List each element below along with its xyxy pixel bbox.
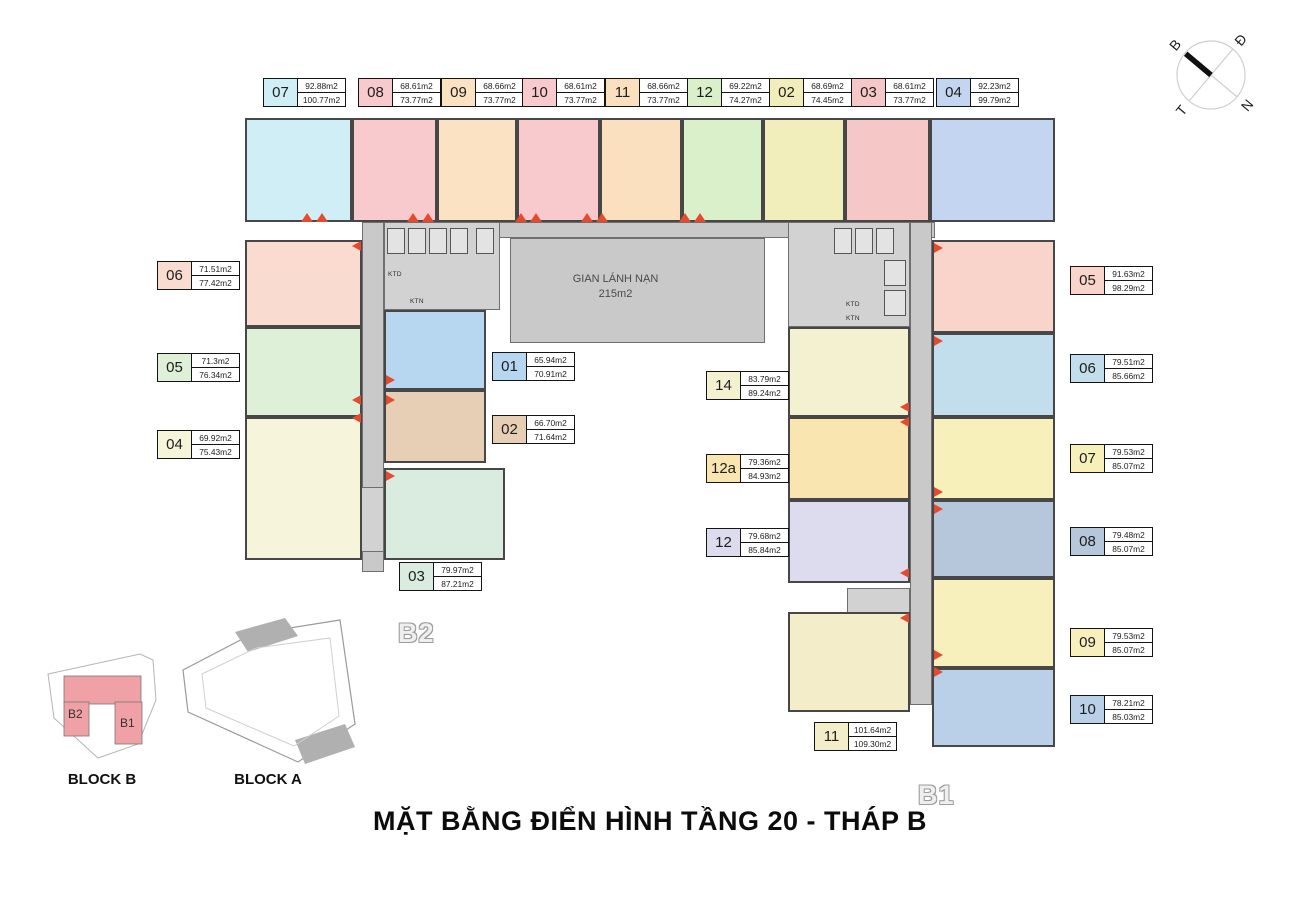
unit-number: 01 (493, 353, 527, 380)
unit-label-right-06: 06 79.51m285.66m2 (1070, 354, 1153, 383)
entry-marker-icon (934, 243, 943, 253)
plan-unit-top-08 (352, 118, 437, 222)
unit-number: 07 (264, 79, 298, 106)
wing-watermark-b2: B2 (398, 618, 435, 649)
unit-area-1: 68.69m2 (804, 79, 851, 93)
unit-area-2: 73.77m2 (557, 93, 604, 106)
compass-north-label: B (1166, 36, 1184, 53)
unit-area-1: 83.79m2 (741, 372, 788, 386)
unit-label-top-08: 08 68.61m273.77m2 (358, 78, 441, 107)
elevator-shaft (408, 228, 426, 254)
unit-area-1: 71.51m2 (192, 262, 239, 276)
unit-number: 03 (852, 79, 886, 106)
unit-number: 04 (158, 431, 192, 458)
unit-number: 08 (359, 79, 393, 106)
entry-marker-icon (301, 213, 313, 222)
entry-marker-icon (679, 213, 691, 222)
unit-number: 08 (1071, 528, 1105, 555)
unit-number: 09 (1071, 629, 1105, 656)
plan-unit-inner-12 (788, 500, 910, 583)
entry-marker-icon (422, 213, 434, 222)
unit-area-2: 99.79m2 (971, 93, 1018, 106)
plan-unit-top-11 (600, 118, 682, 222)
unit-area-1: 79.97m2 (434, 563, 481, 577)
refuge-size: 215m2 (528, 287, 703, 302)
elevator-shaft (834, 228, 852, 254)
stairs-right (847, 588, 910, 614)
plan-unit-top-02 (763, 118, 845, 222)
plan-unit-inner-14 (788, 327, 910, 417)
plan-unit-top-12 (682, 118, 763, 222)
unit-label-top-04: 04 92.23m299.79m2 (936, 78, 1019, 107)
entry-marker-icon (581, 213, 593, 222)
unit-label-inner-02: 02 66.70m271.64m2 (492, 415, 575, 444)
entry-marker-icon (407, 213, 419, 222)
unit-area-2: 74.27m2 (722, 93, 769, 106)
block-a-label: BLOCK A (234, 771, 302, 788)
unit-area-1: 69.92m2 (192, 431, 239, 445)
entry-marker-icon (386, 395, 395, 405)
unit-area-1: 68.66m2 (476, 79, 523, 93)
unit-area-2: 85.07m2 (1105, 643, 1152, 656)
unit-number: 14 (707, 372, 741, 399)
unit-area-1: 66.70m2 (527, 416, 574, 430)
plan-unit-right-06 (932, 333, 1055, 417)
elevator-shaft (450, 228, 468, 254)
unit-number: 12a (707, 455, 741, 482)
plan-unit-top-10 (517, 118, 600, 222)
entry-marker-icon (316, 213, 328, 222)
unit-area-1: 65.94m2 (527, 353, 574, 367)
unit-area-1: 68.61m2 (886, 79, 933, 93)
core-label-ktd: KTD (388, 271, 402, 278)
plan-unit-inner-12a (788, 417, 910, 500)
elevator-shaft (429, 228, 447, 254)
unit-number: 12 (688, 79, 722, 106)
unit-area-2: 85.03m2 (1105, 710, 1152, 723)
elevator-shaft (855, 228, 873, 254)
plan-unit-right-05 (932, 240, 1055, 333)
unit-number: 07 (1071, 445, 1105, 472)
unit-number: 03 (400, 563, 434, 590)
unit-area-2: 73.77m2 (886, 93, 933, 106)
unit-area-1: 101.64m2 (849, 723, 896, 737)
elevator-shaft (476, 228, 494, 254)
unit-area-1: 79.36m2 (741, 455, 788, 469)
unit-label-right-09: 09 79.53m285.07m2 (1070, 628, 1153, 657)
plan-unit-left-06 (245, 240, 362, 327)
entry-marker-icon (352, 241, 361, 251)
entry-marker-icon (900, 417, 909, 427)
unit-number: 05 (158, 354, 192, 381)
unit-label-top-10: 10 68.61m273.77m2 (522, 78, 605, 107)
unit-label-top-03: 03 68.61m273.77m2 (851, 78, 934, 107)
core-label-ktn: KTN (410, 298, 424, 305)
plan-unit-right-07 (932, 417, 1055, 500)
compass-needle (1186, 54, 1211, 75)
unit-number: 02 (493, 416, 527, 443)
unit-label-top-07: 07 92.88m2100.77m2 (263, 78, 346, 107)
unit-area-2: 75.43m2 (192, 445, 239, 458)
unit-area-1: 78.21m2 (1105, 696, 1152, 710)
plan-unit-inner-02 (384, 390, 486, 463)
unit-area-2: 73.77m2 (640, 93, 687, 106)
unit-area-2: 109.30m2 (849, 737, 896, 750)
entry-marker-icon (934, 336, 943, 346)
unit-area-2: 87.21m2 (434, 577, 481, 590)
unit-area-2: 73.77m2 (476, 93, 523, 106)
unit-label-right-10: 10 78.21m285.03m2 (1070, 695, 1153, 724)
entry-marker-icon (934, 487, 943, 497)
unit-area-2: 85.07m2 (1105, 542, 1152, 555)
unit-label-right-07: 07 79.53m285.07m2 (1070, 444, 1153, 473)
entry-marker-icon (530, 213, 542, 222)
unit-label-right-05: 05 91.63m298.29m2 (1070, 266, 1153, 295)
plan-unit-left-05 (245, 327, 362, 417)
elevator-shaft (876, 228, 894, 254)
compass-south-label: N (1238, 96, 1257, 114)
page-title: MẶT BẰNG ĐIỂN HÌNH TẦNG 20 - THÁP B (0, 806, 1300, 837)
unit-number: 02 (770, 79, 804, 106)
unit-number: 06 (158, 262, 192, 289)
unit-label-top-11: 11 68.66m273.77m2 (605, 78, 688, 107)
unit-number: 06 (1071, 355, 1105, 382)
unit-area-2: 77.42m2 (192, 276, 239, 289)
unit-area-2: 85.07m2 (1105, 459, 1152, 472)
unit-area-2: 70.91m2 (527, 367, 574, 380)
plan-unit-right-08 (932, 500, 1055, 578)
unit-label-top-02: 02 68.69m274.45m2 (769, 78, 852, 107)
unit-area-1: 91.63m2 (1105, 267, 1152, 281)
unit-number: 10 (1071, 696, 1105, 723)
site-key-map: B2 B1 BLOCK B BLOCK A (40, 612, 385, 797)
unit-area-1: 69.22m2 (722, 79, 769, 93)
unit-area-1: 79.53m2 (1105, 629, 1152, 643)
unit-area-2: 89.24m2 (741, 386, 788, 399)
unit-number: 12 (707, 529, 741, 556)
core-label-ktn: KTN (846, 315, 860, 322)
plan-unit-top-04 (930, 118, 1055, 222)
entry-marker-icon (900, 402, 909, 412)
unit-area-2: 98.29m2 (1105, 281, 1152, 294)
plan-unit-inner-03 (384, 468, 505, 560)
block-b-label: BLOCK B (68, 771, 136, 788)
elevator-shaft (884, 260, 906, 286)
core-label-ktd: KTD (846, 301, 860, 308)
site-b1-label: B1 (120, 716, 135, 730)
plan-unit-right-10 (932, 668, 1055, 747)
compass: B Đ N T (1152, 16, 1270, 134)
unit-area-2: 85.66m2 (1105, 369, 1152, 382)
unit-area-1: 68.61m2 (393, 79, 440, 93)
compass-east-label: Đ (1231, 31, 1250, 49)
entry-marker-icon (900, 568, 909, 578)
unit-area-1: 71.3m2 (192, 354, 239, 368)
unit-label-top-12: 12 69.22m274.27m2 (687, 78, 770, 107)
unit-area-1: 92.23m2 (971, 79, 1018, 93)
entry-marker-icon (352, 413, 361, 423)
unit-area-2: 71.64m2 (527, 430, 574, 443)
plan-unit-top-03 (845, 118, 930, 222)
unit-label-left-04: 04 69.92m275.43m2 (157, 430, 240, 459)
unit-area-2: 84.93m2 (741, 469, 788, 482)
unit-label-left-05: 05 71.3m276.34m2 (157, 353, 240, 382)
refuge-name: GIAN LÁNH NẠN (528, 272, 703, 287)
unit-number: 11 (606, 79, 640, 106)
plan-unit-right-09 (932, 578, 1055, 668)
wing-watermark-b1: B1 (918, 780, 955, 811)
unit-label-top-09: 09 68.66m273.77m2 (441, 78, 524, 107)
compass-west-label: T (1173, 101, 1191, 118)
elevator-shaft (387, 228, 405, 254)
entry-marker-icon (934, 504, 943, 514)
plan-unit-inner-11 (788, 612, 910, 712)
unit-label-inner-01: 01 65.94m270.91m2 (492, 352, 575, 381)
unit-label-inner-11: 11 101.64m2109.30m2 (814, 722, 897, 751)
unit-label-inner-14: 14 83.79m289.24m2 (706, 371, 789, 400)
unit-area-1: 79.51m2 (1105, 355, 1152, 369)
unit-label-inner-12a: 12a 79.36m284.93m2 (706, 454, 789, 483)
entry-marker-icon (352, 395, 361, 405)
unit-label-inner-12: 12 79.68m285.84m2 (706, 528, 789, 557)
entry-marker-icon (515, 213, 527, 222)
unit-area-1: 79.68m2 (741, 529, 788, 543)
unit-area-2: 85.84m2 (741, 543, 788, 556)
entry-marker-icon (900, 613, 909, 623)
entry-marker-icon (934, 650, 943, 660)
unit-number: 04 (937, 79, 971, 106)
unit-area-2: 73.77m2 (393, 93, 440, 106)
unit-area-2: 100.77m2 (298, 93, 345, 106)
plan-unit-top-07 (245, 118, 352, 222)
unit-area-1: 79.53m2 (1105, 445, 1152, 459)
unit-area-1: 68.66m2 (640, 79, 687, 93)
plan-unit-top-09 (437, 118, 517, 222)
unit-area-1: 68.61m2 (557, 79, 604, 93)
unit-number: 09 (442, 79, 476, 106)
entry-marker-icon (386, 375, 395, 385)
unit-area-1: 79.48m2 (1105, 528, 1152, 542)
unit-number: 10 (523, 79, 557, 106)
entry-marker-icon (596, 213, 608, 222)
elevator-shaft (884, 290, 906, 316)
unit-number: 05 (1071, 267, 1105, 294)
unit-label-left-06: 06 71.51m277.42m2 (157, 261, 240, 290)
entry-marker-icon (386, 471, 395, 481)
unit-label-inner-03: 03 79.97m287.21m2 (399, 562, 482, 591)
unit-area-2: 76.34m2 (192, 368, 239, 381)
site-b2-label: B2 (68, 707, 83, 721)
entry-marker-icon (694, 213, 706, 222)
entry-marker-icon (934, 667, 943, 677)
unit-label-right-08: 08 79.48m285.07m2 (1070, 527, 1153, 556)
unit-area-2: 74.45m2 (804, 93, 851, 106)
plan-unit-inner-01 (384, 310, 486, 390)
unit-area-1: 92.88m2 (298, 79, 345, 93)
floor-plan-page: KTD KTN KTD KTN GIAN LÁNH NẠN 215m2 (0, 0, 1300, 918)
corridor-right-wing (910, 222, 932, 705)
refuge-label: GIAN LÁNH NẠN 215m2 (528, 272, 703, 303)
plan-unit-left-04 (245, 417, 362, 560)
unit-number: 11 (815, 723, 849, 750)
